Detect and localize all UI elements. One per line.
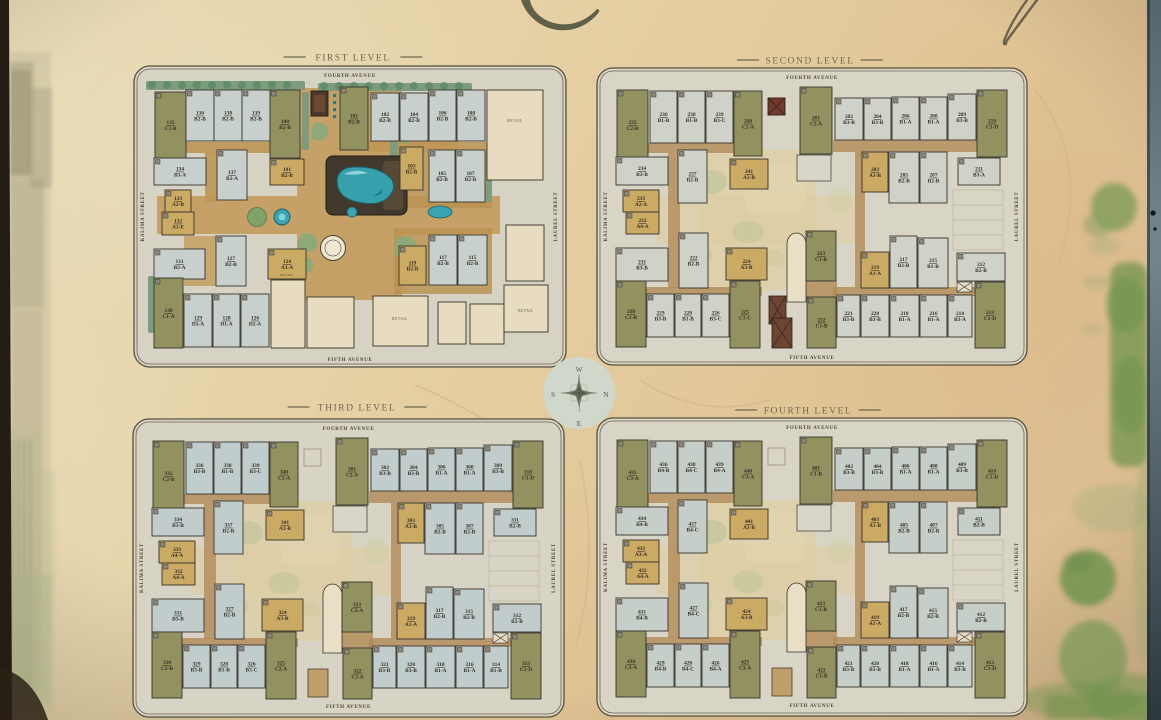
svg-text:B3-C: B3-C <box>710 316 722 322</box>
svg-text:B2-B: B2-B <box>223 528 235 534</box>
svg-text:N: N <box>603 391 609 399</box>
svg-text:B3-A: B3-A <box>174 172 186 178</box>
svg-text:B2-B: B2-B <box>467 261 479 267</box>
svg-text:B3-B: B3-B <box>655 316 667 322</box>
svg-text:C2-A: C2-A <box>278 475 290 481</box>
svg-text:A4-A: A4-A <box>172 575 184 581</box>
svg-text:FOURTH AVENUE: FOURTH AVENUE <box>786 426 838 431</box>
svg-text:B3-B: B3-B <box>956 468 968 474</box>
svg-text:B4-B: B4-B <box>655 666 667 672</box>
svg-text:FIFTH AVENUE: FIFTH AVENUE <box>789 704 834 709</box>
svg-text:A1-A: A1-A <box>869 621 881 627</box>
svg-text:A1-E: A1-E <box>172 224 184 230</box>
svg-text:B3-B: B3-B <box>872 470 884 476</box>
svg-text:B3-B: B3-B <box>636 265 648 271</box>
svg-text:LAUREL STREET: LAUREL STREET <box>554 192 559 242</box>
svg-text:S: S <box>551 391 555 399</box>
svg-text:B4-A: B4-A <box>710 666 722 672</box>
svg-text:C1-B: C1-B <box>816 673 828 679</box>
svg-text:C2-B: C2-B <box>163 477 175 483</box>
svg-text:B3-B: B3-B <box>405 668 417 674</box>
svg-text:B2-B: B2-B <box>463 615 475 621</box>
svg-text:C1-D: C1-D <box>520 667 532 673</box>
svg-text:A3-B: A3-B <box>279 526 291 532</box>
svg-text:FIFTH AVENUE: FIFTH AVENUE <box>327 358 372 363</box>
svg-text:A3-B: A3-B <box>743 175 755 181</box>
svg-text:C1-D: C1-D <box>522 475 534 481</box>
svg-text:A1-B: A1-B <box>869 523 881 529</box>
svg-text:C1-D: C1-D <box>984 666 996 672</box>
svg-text:C2-A: C2-A <box>351 608 363 614</box>
svg-text:B2-B: B2-B <box>973 522 985 528</box>
svg-text:RETAIL: RETAIL <box>392 317 408 321</box>
svg-text:B2-B: B2-B <box>898 263 910 269</box>
svg-text:B4-C: B4-C <box>686 468 698 474</box>
svg-text:B3-B: B3-B <box>408 471 420 477</box>
svg-text:A1-A: A1-A <box>405 622 417 628</box>
svg-text:B2-B: B2-B <box>224 612 236 618</box>
svg-text:FIFTH AVENUE: FIFTH AVENUE <box>326 705 371 710</box>
svg-text:SECOND LEVEL: SECOND LEVEL <box>765 56 854 67</box>
svg-text:B2-B: B2-B <box>464 529 476 535</box>
svg-text:A2-B: A2-B <box>172 202 184 208</box>
svg-text:C2-B: C2-B <box>161 666 173 672</box>
svg-text:KALIMA STREET: KALIMA STREET <box>140 543 145 593</box>
svg-text:B3-C: B3-C <box>246 667 258 673</box>
svg-text:A3-A: A3-A <box>635 552 647 558</box>
svg-text:B3-B: B3-B <box>872 120 884 126</box>
svg-text:B2-B: B2-B <box>434 529 446 535</box>
svg-text:FOURTH LEVEL: FOURTH LEVEL <box>764 406 853 417</box>
svg-text:FOURTH AVENUE: FOURTH AVENUE <box>324 74 376 79</box>
svg-text:B2-B: B2-B <box>688 261 700 267</box>
svg-text:B3-B: B3-B <box>869 317 881 323</box>
svg-text:D2-A: D2-A <box>249 321 261 327</box>
svg-text:C1-D: C1-D <box>984 316 996 322</box>
svg-text:A4-A: A4-A <box>636 574 648 580</box>
svg-text:B3-A: B3-A <box>174 265 186 271</box>
svg-text:B3-B: B3-B <box>843 470 855 476</box>
svg-text:B1-A: B1-A <box>899 317 911 323</box>
svg-text:B4-A: B4-A <box>714 468 726 474</box>
svg-text:RETAIL: RETAIL <box>507 119 523 123</box>
svg-text:B1-B: B1-B <box>490 668 502 674</box>
svg-text:C1-D: C1-D <box>986 124 998 130</box>
svg-text:B2-B: B2-B <box>928 178 940 184</box>
svg-text:B1-A: B1-A <box>899 667 911 673</box>
svg-text:C3-A: C3-A <box>742 474 754 480</box>
svg-text:B3-B: B3-B <box>843 317 855 323</box>
svg-text:A3-B: A3-B <box>869 173 881 179</box>
svg-text:C3-B: C3-B <box>165 126 177 132</box>
svg-text:B2-B: B2-B <box>898 178 910 184</box>
svg-text:FIFTH AVENUE: FIFTH AVENUE <box>789 356 834 361</box>
svg-text:B3-B: B3-B <box>194 469 206 475</box>
svg-text:C2-A: C2-A <box>742 124 754 130</box>
svg-text:C1-C: C1-C <box>739 315 751 321</box>
svg-text:A3-B: A3-B <box>277 616 289 622</box>
svg-text:A3-B: A3-B <box>741 265 753 271</box>
svg-text:C1-B: C1-B <box>625 315 637 321</box>
svg-text:B1-B: B1-B <box>686 118 698 124</box>
svg-text:B2-B: B2-B <box>408 118 420 124</box>
svg-text:B2-B: B2-B <box>436 177 448 183</box>
svg-text:B1-A: B1-A <box>900 119 912 125</box>
svg-text:C3-A: C3-A <box>626 476 638 482</box>
svg-text:B3-B: B3-B <box>172 523 184 529</box>
svg-text:C2-A: C2-A <box>810 121 822 127</box>
svg-text:B3-B: B3-B <box>636 172 648 178</box>
svg-text:B2-B: B2-B <box>437 261 449 267</box>
svg-text:B4-C: B4-C <box>688 611 700 617</box>
svg-text:B2-B: B2-B <box>281 173 293 179</box>
svg-text:A3-A: A3-A <box>281 265 293 271</box>
svg-text:B2-B: B2-B <box>222 116 234 122</box>
svg-text:A4-A: A4-A <box>636 224 648 230</box>
svg-text:A3-B: A3-B <box>741 615 753 621</box>
svg-text:B3-B: B3-B <box>954 667 966 673</box>
svg-text:B2-B: B2-B <box>898 613 910 619</box>
svg-text:LAUREL STREET: LAUREL STREET <box>552 543 557 593</box>
svg-text:W: W <box>576 366 583 374</box>
svg-text:C1-B: C1-B <box>810 471 822 477</box>
svg-text:C1-B: C1-B <box>815 607 827 613</box>
svg-text:A1-A: A1-A <box>869 271 881 277</box>
svg-text:B1-A: B1-A <box>464 668 476 674</box>
svg-text:FIRST LEVEL: FIRST LEVEL <box>315 53 390 64</box>
svg-text:B3-C: B3-C <box>250 469 262 475</box>
svg-text:B2-B: B2-B <box>465 116 477 122</box>
svg-text:KALIMA STREET: KALIMA STREET <box>604 542 609 592</box>
svg-text:B1-A: B1-A <box>928 317 940 323</box>
svg-text:RETAIL: RETAIL <box>518 309 534 313</box>
svg-text:B3-B: B3-B <box>843 667 855 673</box>
svg-text:A3-B: A3-B <box>743 525 755 531</box>
svg-text:D1-A: D1-A <box>220 321 232 327</box>
svg-text:B1-A: B1-A <box>928 469 940 475</box>
svg-text:B2-B: B2-B <box>975 268 987 274</box>
svg-text:KALIMA STREET: KALIMA STREET <box>141 191 146 241</box>
svg-text:C1-B: C1-B <box>816 323 828 329</box>
svg-text:B3-B: B3-B <box>379 668 391 674</box>
svg-text:B2-B: B2-B <box>406 169 418 175</box>
svg-text:B2-B: B2-B <box>509 523 521 529</box>
svg-text:B2-B: B2-B <box>928 528 940 534</box>
svg-text:B1-A: B1-A <box>900 469 912 475</box>
svg-text:B2-B: B2-B <box>437 116 449 122</box>
svg-text:B3-B: B3-B <box>492 469 504 475</box>
svg-text:B2-B: B2-B <box>511 619 523 625</box>
svg-text:C2-A: C2-A <box>346 472 358 478</box>
svg-text:B1-B: B1-B <box>927 264 939 270</box>
svg-text:B3-B: B3-B <box>956 118 968 124</box>
svg-text:B2-B: B2-B <box>898 528 910 534</box>
svg-text:B2-B: B2-B <box>348 119 360 125</box>
svg-text:B4-B: B4-B <box>636 522 648 528</box>
svg-text:B1-B: B1-B <box>222 469 234 475</box>
svg-text:B2-B: B2-B <box>279 125 291 131</box>
svg-text:B1-A: B1-A <box>928 119 940 125</box>
svg-text:B3-A: B3-A <box>973 172 985 178</box>
svg-text:C3-A: C3-A <box>739 665 751 671</box>
svg-text:B2-B: B2-B <box>225 262 237 268</box>
svg-text:B3-A: B3-A <box>954 317 966 323</box>
svg-text:A4-A: A4-A <box>171 553 183 559</box>
svg-text:B1-B: B1-B <box>682 316 694 322</box>
svg-text:A2-A: A2-A <box>635 202 647 208</box>
svg-text:RETAIL: RETAIL <box>280 273 293 277</box>
svg-text:E: E <box>577 420 582 428</box>
svg-text:B3-B: B3-B <box>843 120 855 126</box>
svg-text:B3-B: B3-B <box>379 471 391 477</box>
svg-text:B1-B: B1-B <box>658 118 670 124</box>
svg-text:B2-B: B2-B <box>465 177 477 183</box>
svg-text:B4-B: B4-B <box>658 468 670 474</box>
svg-text:B4-C: B4-C <box>687 527 699 533</box>
svg-text:FOURTH AVENUE: FOURTH AVENUE <box>323 427 375 432</box>
svg-text:B2-B: B2-B <box>927 614 939 620</box>
svg-text:KALIMA STREET: KALIMA STREET <box>604 191 609 241</box>
svg-text:B2-B: B2-B <box>975 618 987 624</box>
svg-text:B3-B: B3-B <box>172 616 184 622</box>
svg-text:C2-A: C2-A <box>351 674 363 680</box>
svg-text:B1-B: B1-B <box>218 667 230 673</box>
svg-text:B3-B: B3-B <box>191 667 203 673</box>
svg-text:THIRD LEVEL: THIRD LEVEL <box>318 403 397 414</box>
svg-text:B1-A: B1-A <box>435 668 447 674</box>
svg-text:D2-A: D2-A <box>192 321 204 327</box>
svg-text:B1-A: B1-A <box>464 470 476 476</box>
svg-text:LAUREL STREET: LAUREL STREET <box>1015 192 1020 242</box>
svg-text:FOURTH AVENUE: FOURTH AVENUE <box>786 76 838 81</box>
svg-text:C2-B: C2-B <box>627 126 639 132</box>
svg-text:C1-B: C1-B <box>815 257 827 263</box>
svg-text:B3-B: B3-B <box>869 667 881 673</box>
svg-text:B2-B: B2-B <box>379 118 391 124</box>
svg-text:C1-D: C1-D <box>986 474 998 480</box>
svg-text:LAUREL STREET: LAUREL STREET <box>1015 542 1020 592</box>
svg-text:B2-B: B2-B <box>407 266 419 272</box>
svg-text:C1-A: C1-A <box>162 314 174 320</box>
svg-text:B3-C: B3-C <box>714 118 726 124</box>
svg-text:B2-B: B2-B <box>434 614 446 620</box>
svg-text:B2-B: B2-B <box>687 177 699 183</box>
svg-text:B2-B: B2-B <box>194 116 206 122</box>
svg-text:B1-A: B1-A <box>436 470 448 476</box>
svg-text:C2-A: C2-A <box>275 666 287 672</box>
svg-text:B4-B: B4-B <box>636 615 648 621</box>
svg-text:B2-B: B2-B <box>250 116 262 122</box>
svg-text:B2-A: B2-A <box>226 176 238 182</box>
svg-text:A3-B: A3-B <box>405 524 417 530</box>
svg-text:B1-A: B1-A <box>928 667 940 673</box>
svg-text:B4-C: B4-C <box>682 666 694 672</box>
svg-text:C3-A: C3-A <box>625 665 637 671</box>
